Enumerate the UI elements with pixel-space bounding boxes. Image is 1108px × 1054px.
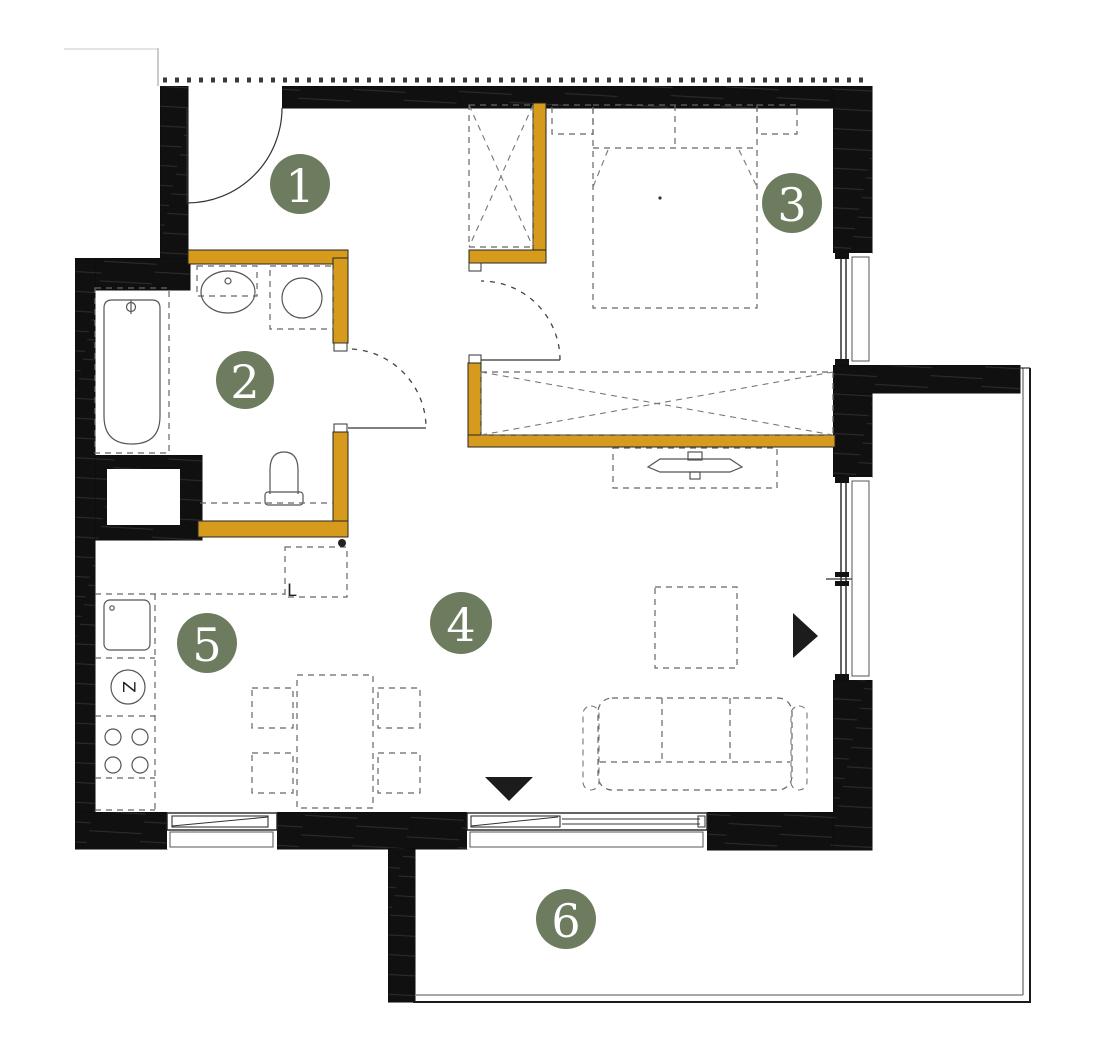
accent-wall-bath-bottom bbox=[198, 521, 348, 537]
entry-door bbox=[187, 108, 282, 203]
site-boundary-lines bbox=[64, 48, 158, 86]
room-number: 5 bbox=[192, 618, 221, 672]
dining-chairs bbox=[252, 688, 420, 793]
room-number: 6 bbox=[551, 894, 580, 948]
tv-stand bbox=[613, 448, 777, 488]
balcony-side-wall bbox=[388, 848, 415, 1002]
dining-chair bbox=[252, 688, 293, 728]
outlet-dot bbox=[338, 539, 346, 547]
bedroom-door bbox=[481, 281, 560, 360]
right-wall-bottom bbox=[833, 680, 872, 850]
room-marker-2: 2 bbox=[216, 351, 274, 409]
direction-arrow-right bbox=[793, 613, 818, 658]
bathroom-sink bbox=[197, 266, 257, 313]
floor-plan-page: Z L bbox=[0, 0, 1108, 1054]
stove-burners bbox=[105, 729, 148, 773]
accent-wall-bath-right-upper bbox=[333, 258, 348, 343]
left-upper-wall bbox=[160, 86, 188, 263]
room-marker-1: 1 bbox=[270, 154, 330, 214]
nightstand bbox=[552, 105, 593, 134]
balcony-railing bbox=[413, 368, 1031, 1002]
bottom-wall-mid bbox=[277, 812, 467, 849]
accent-wall-bath-right-lower bbox=[333, 432, 348, 521]
right-wall-jut bbox=[833, 365, 1020, 393]
toilet bbox=[200, 452, 333, 505]
bathtub bbox=[95, 288, 169, 453]
exterior-walls bbox=[75, 86, 1020, 1002]
nightstand bbox=[757, 105, 797, 134]
right-wall-mid bbox=[833, 393, 872, 477]
accent-wall-wardrobe-vert bbox=[533, 103, 546, 250]
window-kitchen bbox=[167, 812, 277, 849]
wardrobe-living bbox=[481, 372, 833, 435]
accent-wall-wardrobe-horiz bbox=[469, 250, 546, 263]
room-number: 3 bbox=[777, 178, 806, 232]
bed bbox=[593, 105, 757, 308]
dining-chair bbox=[378, 688, 420, 728]
room-number: 4 bbox=[446, 598, 475, 652]
washing-machine bbox=[270, 266, 333, 329]
left-wall bbox=[75, 258, 95, 848]
bedroom-door-arc bbox=[481, 281, 560, 360]
accent-wall-living-vert bbox=[468, 363, 481, 447]
right-wall-top bbox=[833, 86, 872, 253]
balcony-door bbox=[467, 812, 707, 849]
coffee-table bbox=[655, 587, 737, 668]
dishwasher-symbol: Z bbox=[111, 670, 145, 704]
bathroom-door-arc bbox=[352, 349, 426, 427]
dining-table bbox=[297, 675, 373, 808]
fridge-box: L bbox=[285, 539, 347, 601]
dishwasher-label: Z bbox=[118, 681, 138, 693]
accent-wall-living-horiz bbox=[468, 435, 835, 447]
floor-plan-svg: Z L bbox=[0, 0, 1108, 1054]
fridge-label: L bbox=[287, 581, 297, 601]
direction-arrow-down bbox=[485, 777, 533, 801]
bathroom-door bbox=[348, 349, 426, 428]
room-marker-3: 3 bbox=[762, 173, 822, 233]
window-living bbox=[826, 477, 872, 680]
bottom-wall-left bbox=[75, 812, 167, 849]
dining-chair bbox=[252, 753, 293, 793]
room-marker-5: 5 bbox=[177, 613, 237, 673]
accent-wall-bath-top bbox=[188, 250, 348, 264]
entry-door-arc bbox=[187, 108, 282, 203]
room-marker-6: 6 bbox=[536, 889, 596, 949]
kitchen-sink bbox=[104, 600, 150, 650]
window-bedroom bbox=[833, 253, 872, 365]
room-marker-4: 4 bbox=[430, 592, 492, 654]
room-number: 1 bbox=[285, 159, 314, 213]
room-number: 2 bbox=[230, 355, 259, 409]
sofa bbox=[583, 698, 807, 790]
shaft-void bbox=[107, 469, 180, 525]
wardrobe-bedroom bbox=[469, 105, 533, 247]
dining-chair bbox=[378, 753, 420, 793]
